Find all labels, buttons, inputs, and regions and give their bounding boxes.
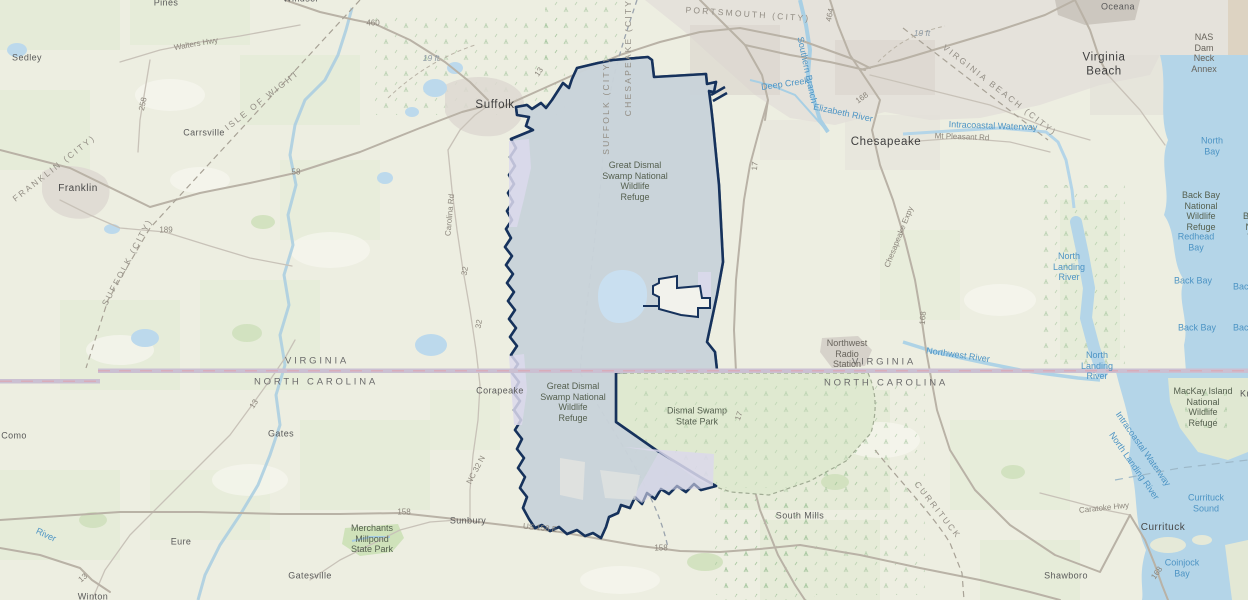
map-graphics <box>0 0 1248 600</box>
refuge-polygon <box>505 57 727 538</box>
map-canvas[interactable]: SuffolkChesapeakeVirginia BeachFranklinC… <box>0 0 1248 600</box>
